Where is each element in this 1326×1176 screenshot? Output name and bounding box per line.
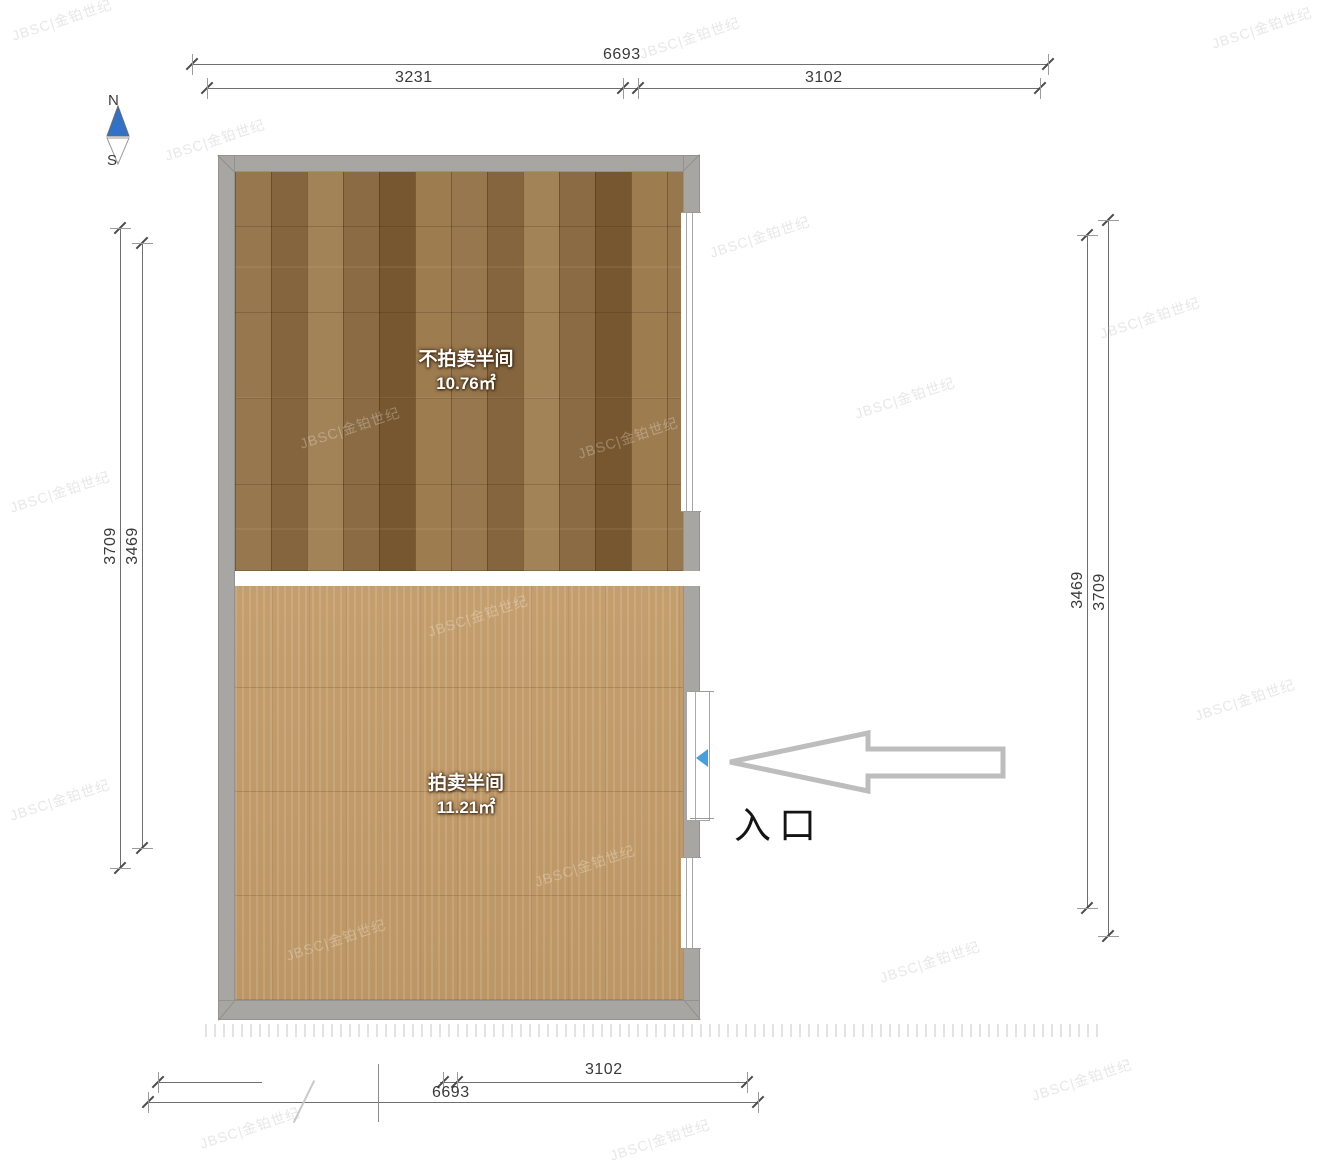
window-pane-line bbox=[692, 858, 693, 948]
watermark: JBSC|金铂世纪 bbox=[1097, 292, 1203, 343]
window-bottom-room bbox=[681, 857, 701, 949]
room-label-not-auctioned: 不拍卖半间 10.76㎡ bbox=[371, 348, 561, 396]
watermark: JBSC|金铂世纪 bbox=[1029, 1054, 1135, 1105]
entrance-direction-icon bbox=[696, 749, 708, 767]
wall-top bbox=[218, 155, 700, 172]
dim-extension-line bbox=[378, 1064, 379, 1122]
dim-top-right-segment: 3102 bbox=[805, 69, 843, 87]
dim-line-bottom-stub bbox=[158, 1082, 262, 1083]
dim-top-left-segment: 3231 bbox=[395, 69, 433, 87]
room-name: 拍卖半间 bbox=[371, 772, 561, 796]
dim-right-inner: 3469 bbox=[1069, 571, 1087, 609]
window-top-room bbox=[681, 212, 701, 512]
watermark: JBSC|金铂世纪 bbox=[637, 12, 743, 63]
dim-bottom-segment: 3102 bbox=[585, 1061, 623, 1079]
room-area: 10.76㎡ bbox=[371, 372, 561, 396]
watermark: JBSC|金铂世纪 bbox=[607, 1114, 713, 1165]
hatch-strip bbox=[205, 1024, 1105, 1037]
entrance-label: 入口 bbox=[734, 795, 824, 849]
window-pane-line bbox=[692, 213, 693, 511]
watermark: JBSC|金铂世纪 bbox=[877, 936, 983, 987]
wall-bottom bbox=[218, 1000, 700, 1020]
room-label-auctioned: 拍卖半间 11.21㎡ bbox=[371, 772, 561, 820]
door-jamb-line bbox=[690, 818, 714, 819]
dim-left-inner: 3469 bbox=[124, 527, 142, 565]
dim-top-total: 6693 bbox=[603, 46, 641, 64]
room-divider-gap bbox=[235, 571, 700, 586]
compass-south-label: S bbox=[107, 152, 117, 169]
window-pane-line bbox=[686, 858, 687, 948]
dim-bottom-total: 6693 bbox=[432, 1084, 470, 1102]
dim-line-left-inner bbox=[142, 243, 143, 848]
watermark: JBSC|金铂世纪 bbox=[7, 774, 113, 825]
dim-right-outer: 3709 bbox=[1091, 573, 1109, 611]
window-pane-line bbox=[686, 213, 687, 511]
room-name: 不拍卖半间 bbox=[371, 348, 561, 372]
dim-line-top-total bbox=[192, 64, 1048, 65]
dim-line-left-outer bbox=[120, 228, 121, 868]
watermark: JBSC|金铂世纪 bbox=[852, 372, 958, 423]
wall-left bbox=[218, 155, 235, 1020]
watermark: JBSC|金铂世纪 bbox=[7, 466, 113, 517]
watermark: JBSC|金铂世纪 bbox=[9, 0, 115, 46]
watermark: JBSC|金铂世纪 bbox=[197, 1102, 303, 1153]
watermark: JBSC|金铂世纪 bbox=[1192, 674, 1298, 725]
dim-left-outer: 3709 bbox=[102, 527, 120, 565]
door-jamb-line bbox=[690, 691, 714, 692]
dim-line-bottom-total bbox=[148, 1102, 758, 1103]
dim-line-right-inner bbox=[1087, 235, 1088, 908]
dim-line-bottom-segment bbox=[440, 1082, 747, 1083]
room-area: 11.21㎡ bbox=[371, 796, 561, 820]
floor-plan-page: N S 6693 3231 3102 3709 3469 3469 3709 3… bbox=[0, 0, 1326, 1176]
entrance-arrow-icon bbox=[725, 725, 1010, 800]
watermark: JBSC|金铂世纪 bbox=[707, 211, 813, 262]
watermark: JBSC|金铂世纪 bbox=[1209, 2, 1315, 53]
